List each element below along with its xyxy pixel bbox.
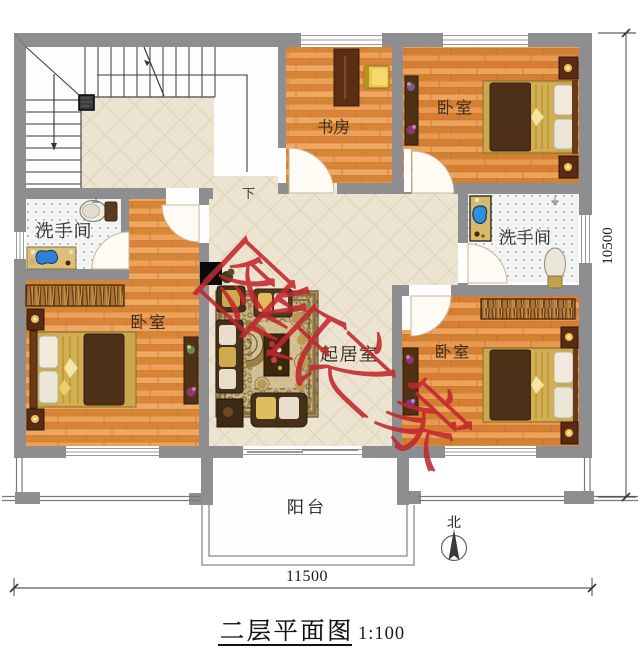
svg-text:11500: 11500	[286, 568, 328, 585]
svg-text:1:100: 1:100	[358, 624, 405, 644]
svg-text:10500: 10500	[600, 227, 616, 265]
